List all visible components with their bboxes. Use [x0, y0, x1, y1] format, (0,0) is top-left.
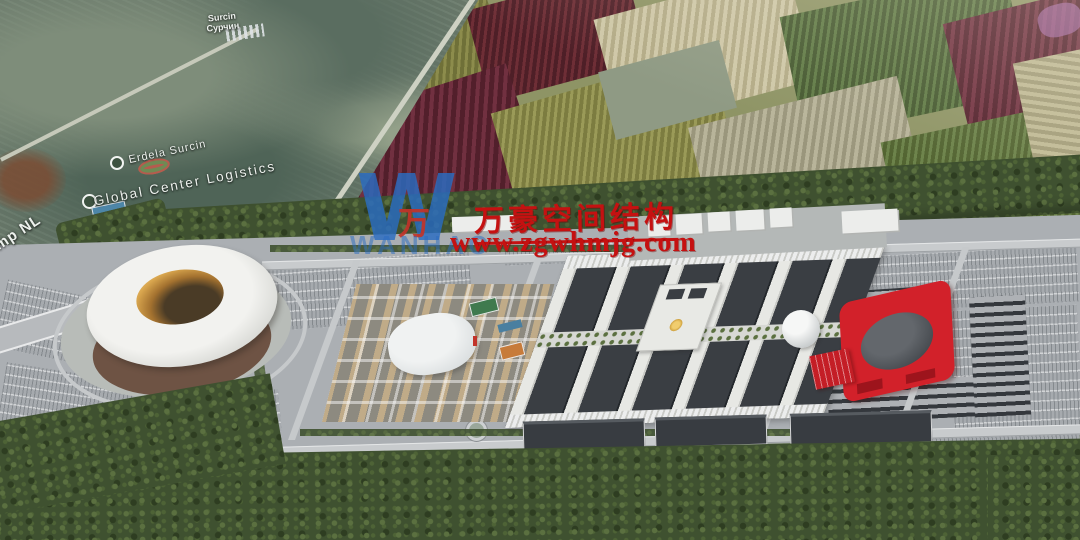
map-label-town: Surcin Сурчин — [205, 10, 240, 34]
white-hall-building — [841, 209, 898, 234]
arena-slot — [857, 378, 883, 394]
helipad — [110, 156, 124, 170]
entrance-glass — [666, 289, 686, 300]
red-sculpture — [473, 336, 477, 346]
warehouse — [655, 415, 768, 448]
aerial-render-scene: Surcin Сурчин Erdela Surcin Global Cente… — [0, 0, 1080, 540]
entrance-glass — [688, 288, 708, 299]
gold-emblem — [668, 319, 684, 332]
white-dome — [782, 310, 820, 348]
solar-canopy-rows — [969, 295, 1031, 418]
arena-slot — [906, 368, 936, 384]
white-block — [770, 207, 793, 227]
watermark-website: www.zgwhmjg.com — [450, 227, 697, 259]
warehouse — [790, 410, 933, 446]
white-block — [735, 209, 764, 230]
arena-roof-glass — [860, 305, 935, 376]
forest-south-east — [988, 455, 1080, 540]
white-block — [708, 211, 731, 231]
